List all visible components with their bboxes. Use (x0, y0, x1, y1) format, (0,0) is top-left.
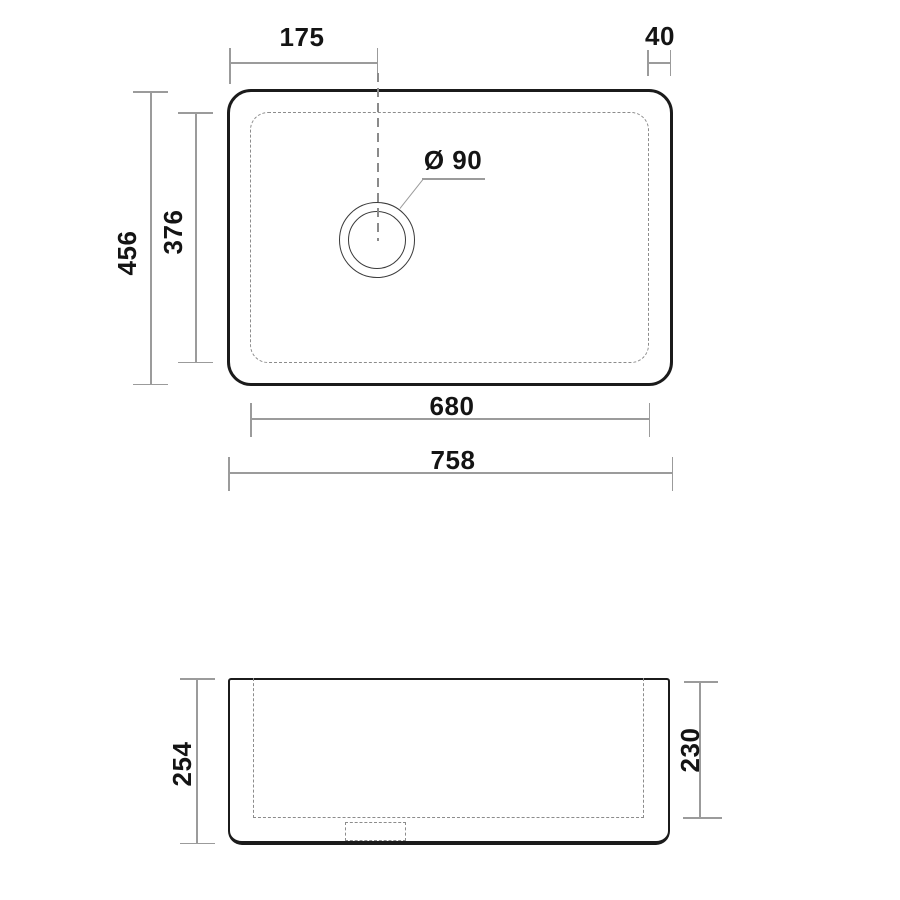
dim-254-label: 254 (169, 742, 195, 787)
dim-254-tick-bottom (180, 843, 215, 844)
dim-680-label: 680 (430, 393, 475, 419)
dim-230-label: 230 (677, 728, 703, 773)
front-view-drain-dashed-outline (345, 822, 406, 841)
sink-technical-drawing: 175 40 456 376 Ø 90 680 758 254 230 (0, 0, 900, 900)
dim-758-tick-left (228, 457, 229, 491)
dim-680-tick-left (250, 403, 251, 437)
dim-456-label: 456 (114, 231, 140, 276)
dim-758-label: 758 (431, 447, 476, 473)
dim-376-tick-bottom (178, 362, 213, 363)
dim-175-line (230, 62, 378, 63)
front-view-bowl-dashed-outline (253, 678, 644, 818)
dim-40-label: 40 (645, 23, 675, 49)
dim-456-line (150, 92, 151, 385)
dim-40-tick-left (647, 50, 648, 76)
dim-230-tick-bottom (683, 817, 722, 818)
dim-456-tick-top (133, 91, 168, 92)
drain-diameter-leader-horizontal (422, 178, 485, 179)
dim-680-tick-right (649, 403, 650, 437)
dim-376-label: 376 (160, 210, 186, 255)
dim-456-tick-bottom (133, 384, 168, 385)
dim-376-tick-top (178, 112, 213, 113)
drain-centerline-dashed (377, 73, 379, 241)
dim-40-tick-right (670, 50, 671, 76)
dim-175-label: 175 (280, 24, 325, 50)
drain-diameter-label: Ø 90 (424, 147, 482, 173)
dim-376-line (195, 113, 196, 363)
dim-40-line (648, 62, 671, 63)
dim-758-tick-right (672, 457, 673, 491)
dim-175-tick-left (229, 48, 230, 84)
dim-175-tick-right (377, 48, 378, 73)
dim-254-tick-top (180, 678, 215, 679)
dim-230-tick-top (684, 681, 718, 682)
